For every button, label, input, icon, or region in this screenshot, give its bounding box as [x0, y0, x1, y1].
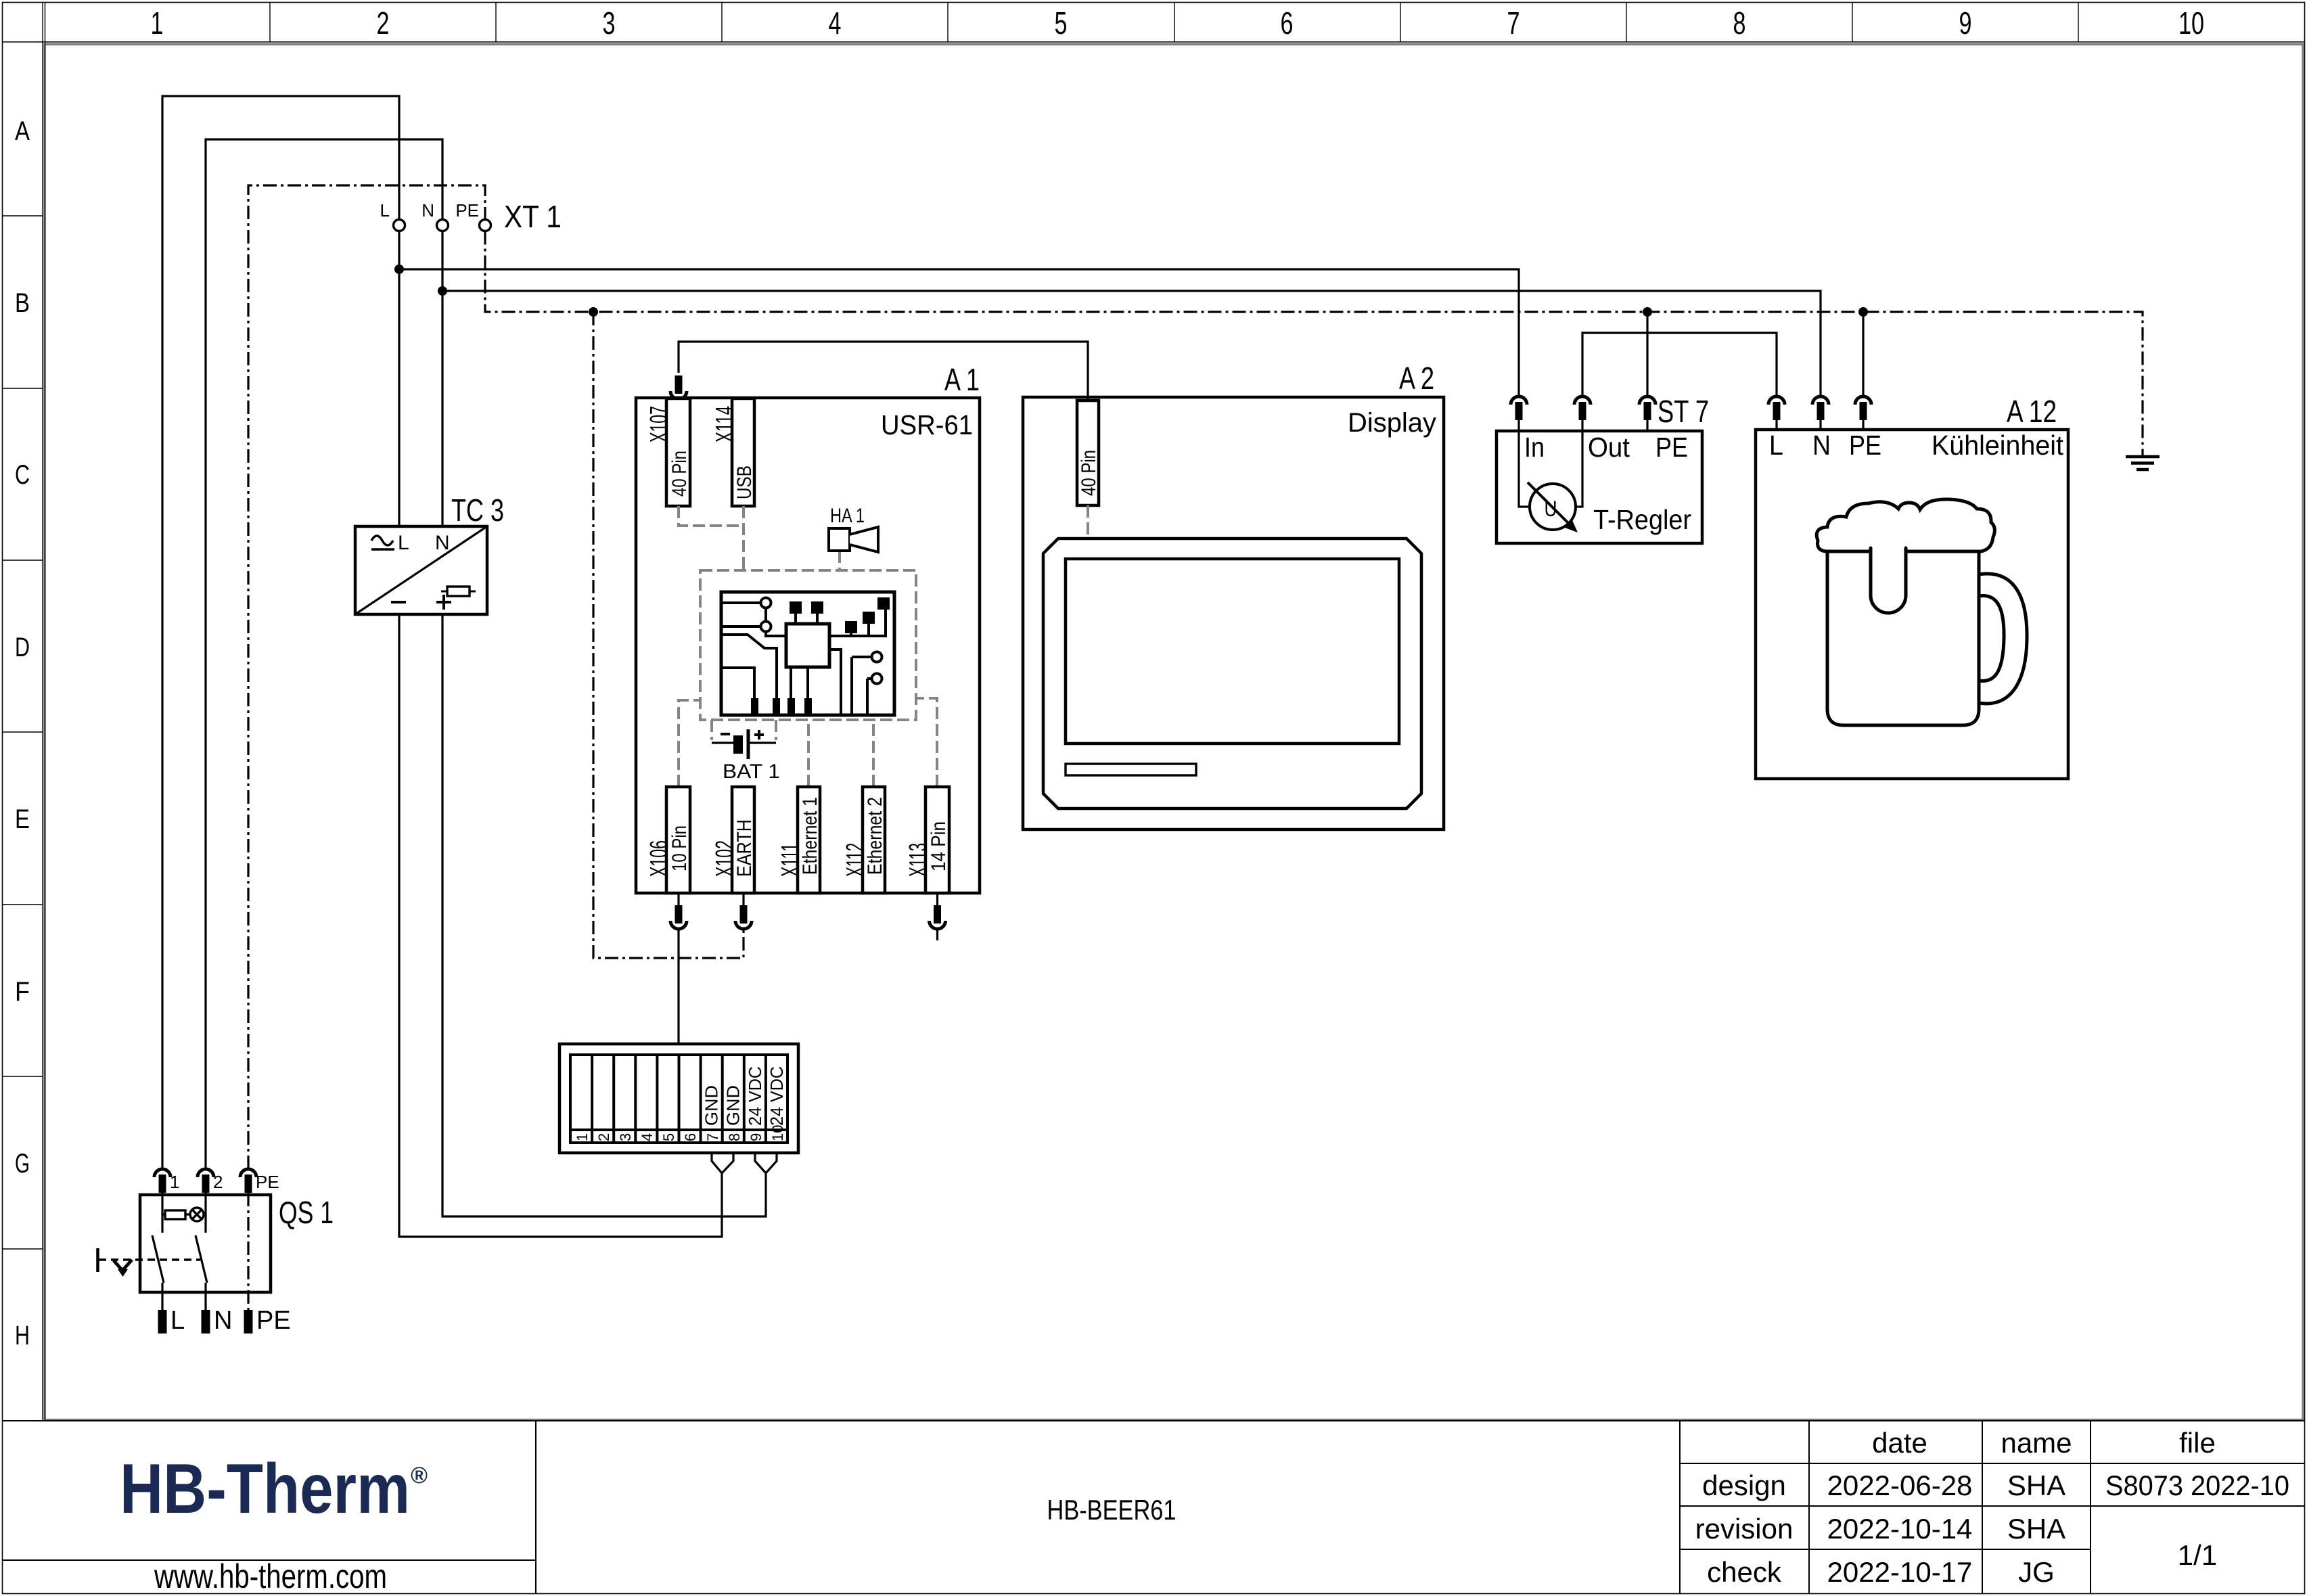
svg-text:1: 1	[574, 1133, 591, 1141]
svg-text:HB-Therm: HB-Therm	[120, 1450, 410, 1528]
svg-text:S8073 2022-10: S8073 2022-10	[2105, 1469, 2289, 1501]
svg-text:USR-61: USR-61	[881, 409, 973, 440]
svg-text:2: 2	[213, 1172, 223, 1192]
svg-text:A 1: A 1	[944, 362, 980, 397]
svg-text:name: name	[2001, 1427, 2072, 1459]
svg-text:L: L	[170, 1306, 185, 1335]
svg-text:5: 5	[660, 1133, 677, 1141]
svg-text:3: 3	[603, 5, 616, 41]
svg-text:PE: PE	[1655, 432, 1688, 463]
svg-text:L: L	[380, 200, 390, 221]
svg-text:D: D	[15, 633, 30, 662]
svg-text:2022-10-17: 2022-10-17	[1827, 1556, 1973, 1588]
svg-text:9: 9	[748, 1133, 764, 1141]
svg-text:PE: PE	[256, 1172, 279, 1192]
svg-text:G: G	[15, 1149, 30, 1179]
svg-text:7: 7	[1507, 5, 1520, 41]
svg-text:C: C	[15, 460, 30, 490]
svg-text:4: 4	[829, 5, 842, 41]
svg-text:10 Pin: 10 Pin	[668, 825, 691, 871]
svg-text:T-Regler: T-Regler	[1593, 504, 1691, 535]
svg-text:A 2: A 2	[1399, 361, 1434, 396]
svg-text:N: N	[214, 1306, 232, 1335]
svg-text:PE: PE	[455, 200, 479, 221]
svg-text:1: 1	[151, 5, 164, 41]
svg-text:®: ®	[411, 1463, 428, 1488]
svg-text:40 Pin: 40 Pin	[668, 451, 691, 497]
svg-text:SHA: SHA	[2007, 1469, 2065, 1501]
svg-text:L: L	[398, 532, 409, 554]
svg-text:revision: revision	[1695, 1513, 1794, 1545]
svg-text:ST 7: ST 7	[1658, 394, 1709, 429]
svg-text:N: N	[1812, 430, 1831, 461]
svg-text:2022-10-14: 2022-10-14	[1827, 1513, 1973, 1545]
svg-text:1: 1	[170, 1172, 179, 1192]
svg-text:1/1: 1/1	[2178, 1539, 2217, 1571]
svg-text:N: N	[435, 532, 450, 554]
svg-text:6: 6	[682, 1133, 699, 1141]
svg-text:XT 1: XT 1	[504, 199, 562, 234]
svg-text:24 VDC: 24 VDC	[745, 1066, 765, 1126]
svg-text:A: A	[15, 116, 30, 146]
svg-text:In: In	[1524, 432, 1545, 463]
svg-text:USB: USB	[733, 465, 756, 499]
svg-text:JG: JG	[2018, 1556, 2055, 1588]
svg-text:2022-06-28: 2022-06-28	[1827, 1469, 1973, 1501]
svg-text:X114: X114	[710, 406, 738, 442]
svg-text:7: 7	[704, 1133, 721, 1141]
svg-text:X107: X107	[645, 406, 672, 442]
svg-text:PE: PE	[1849, 430, 1881, 461]
svg-text:2: 2	[377, 5, 390, 41]
svg-text:4: 4	[639, 1133, 656, 1141]
svg-text:2: 2	[595, 1133, 612, 1141]
svg-text:HB-BEER61: HB-BEER61	[1047, 1494, 1177, 1526]
svg-text:PE: PE	[256, 1306, 291, 1335]
svg-text:Ethernet 1: Ethernet 1	[799, 797, 821, 875]
svg-text:Display: Display	[1348, 408, 1436, 438]
svg-text:file: file	[2179, 1427, 2216, 1459]
svg-text:6: 6	[1281, 5, 1294, 41]
svg-text:10: 10	[2178, 5, 2204, 41]
svg-text:date: date	[1872, 1427, 1927, 1459]
svg-text:F: F	[15, 977, 30, 1007]
svg-text:5: 5	[1055, 5, 1068, 41]
svg-text:BAT 1: BAT 1	[723, 760, 780, 783]
svg-text:L: L	[1769, 430, 1783, 461]
svg-text:24 VDC: 24 VDC	[767, 1066, 787, 1126]
svg-text:B: B	[15, 288, 30, 318]
svg-text:HA 1: HA 1	[830, 505, 865, 527]
svg-text:Ethernet 2: Ethernet 2	[864, 797, 886, 875]
svg-text:A 12: A 12	[2007, 394, 2057, 429]
svg-text:SHA: SHA	[2007, 1513, 2065, 1545]
svg-text:design: design	[1702, 1469, 1786, 1501]
svg-text:EARTH: EARTH	[733, 819, 756, 877]
svg-text:9: 9	[1959, 5, 1972, 41]
svg-text:8: 8	[726, 1133, 743, 1141]
svg-text:10: 10	[769, 1125, 786, 1141]
svg-text:check: check	[1707, 1556, 1782, 1588]
svg-text:TC 3: TC 3	[451, 493, 504, 528]
svg-text:GND: GND	[702, 1085, 722, 1126]
svg-text:E: E	[15, 804, 30, 834]
svg-text:Kühleinheit: Kühleinheit	[1932, 430, 2064, 461]
svg-text:N: N	[421, 200, 434, 221]
svg-text:Out: Out	[1588, 432, 1630, 463]
svg-text:40 Pin: 40 Pin	[1078, 450, 1100, 496]
svg-text:H: H	[15, 1321, 30, 1350]
svg-text:14 Pin: 14 Pin	[928, 821, 950, 871]
svg-text:GND: GND	[723, 1085, 744, 1126]
svg-text:8: 8	[1733, 5, 1746, 41]
svg-text:3: 3	[617, 1133, 634, 1141]
svg-text:QS 1: QS 1	[279, 1195, 334, 1230]
svg-text:www.hb-therm.com: www.hb-therm.com	[154, 1557, 387, 1595]
